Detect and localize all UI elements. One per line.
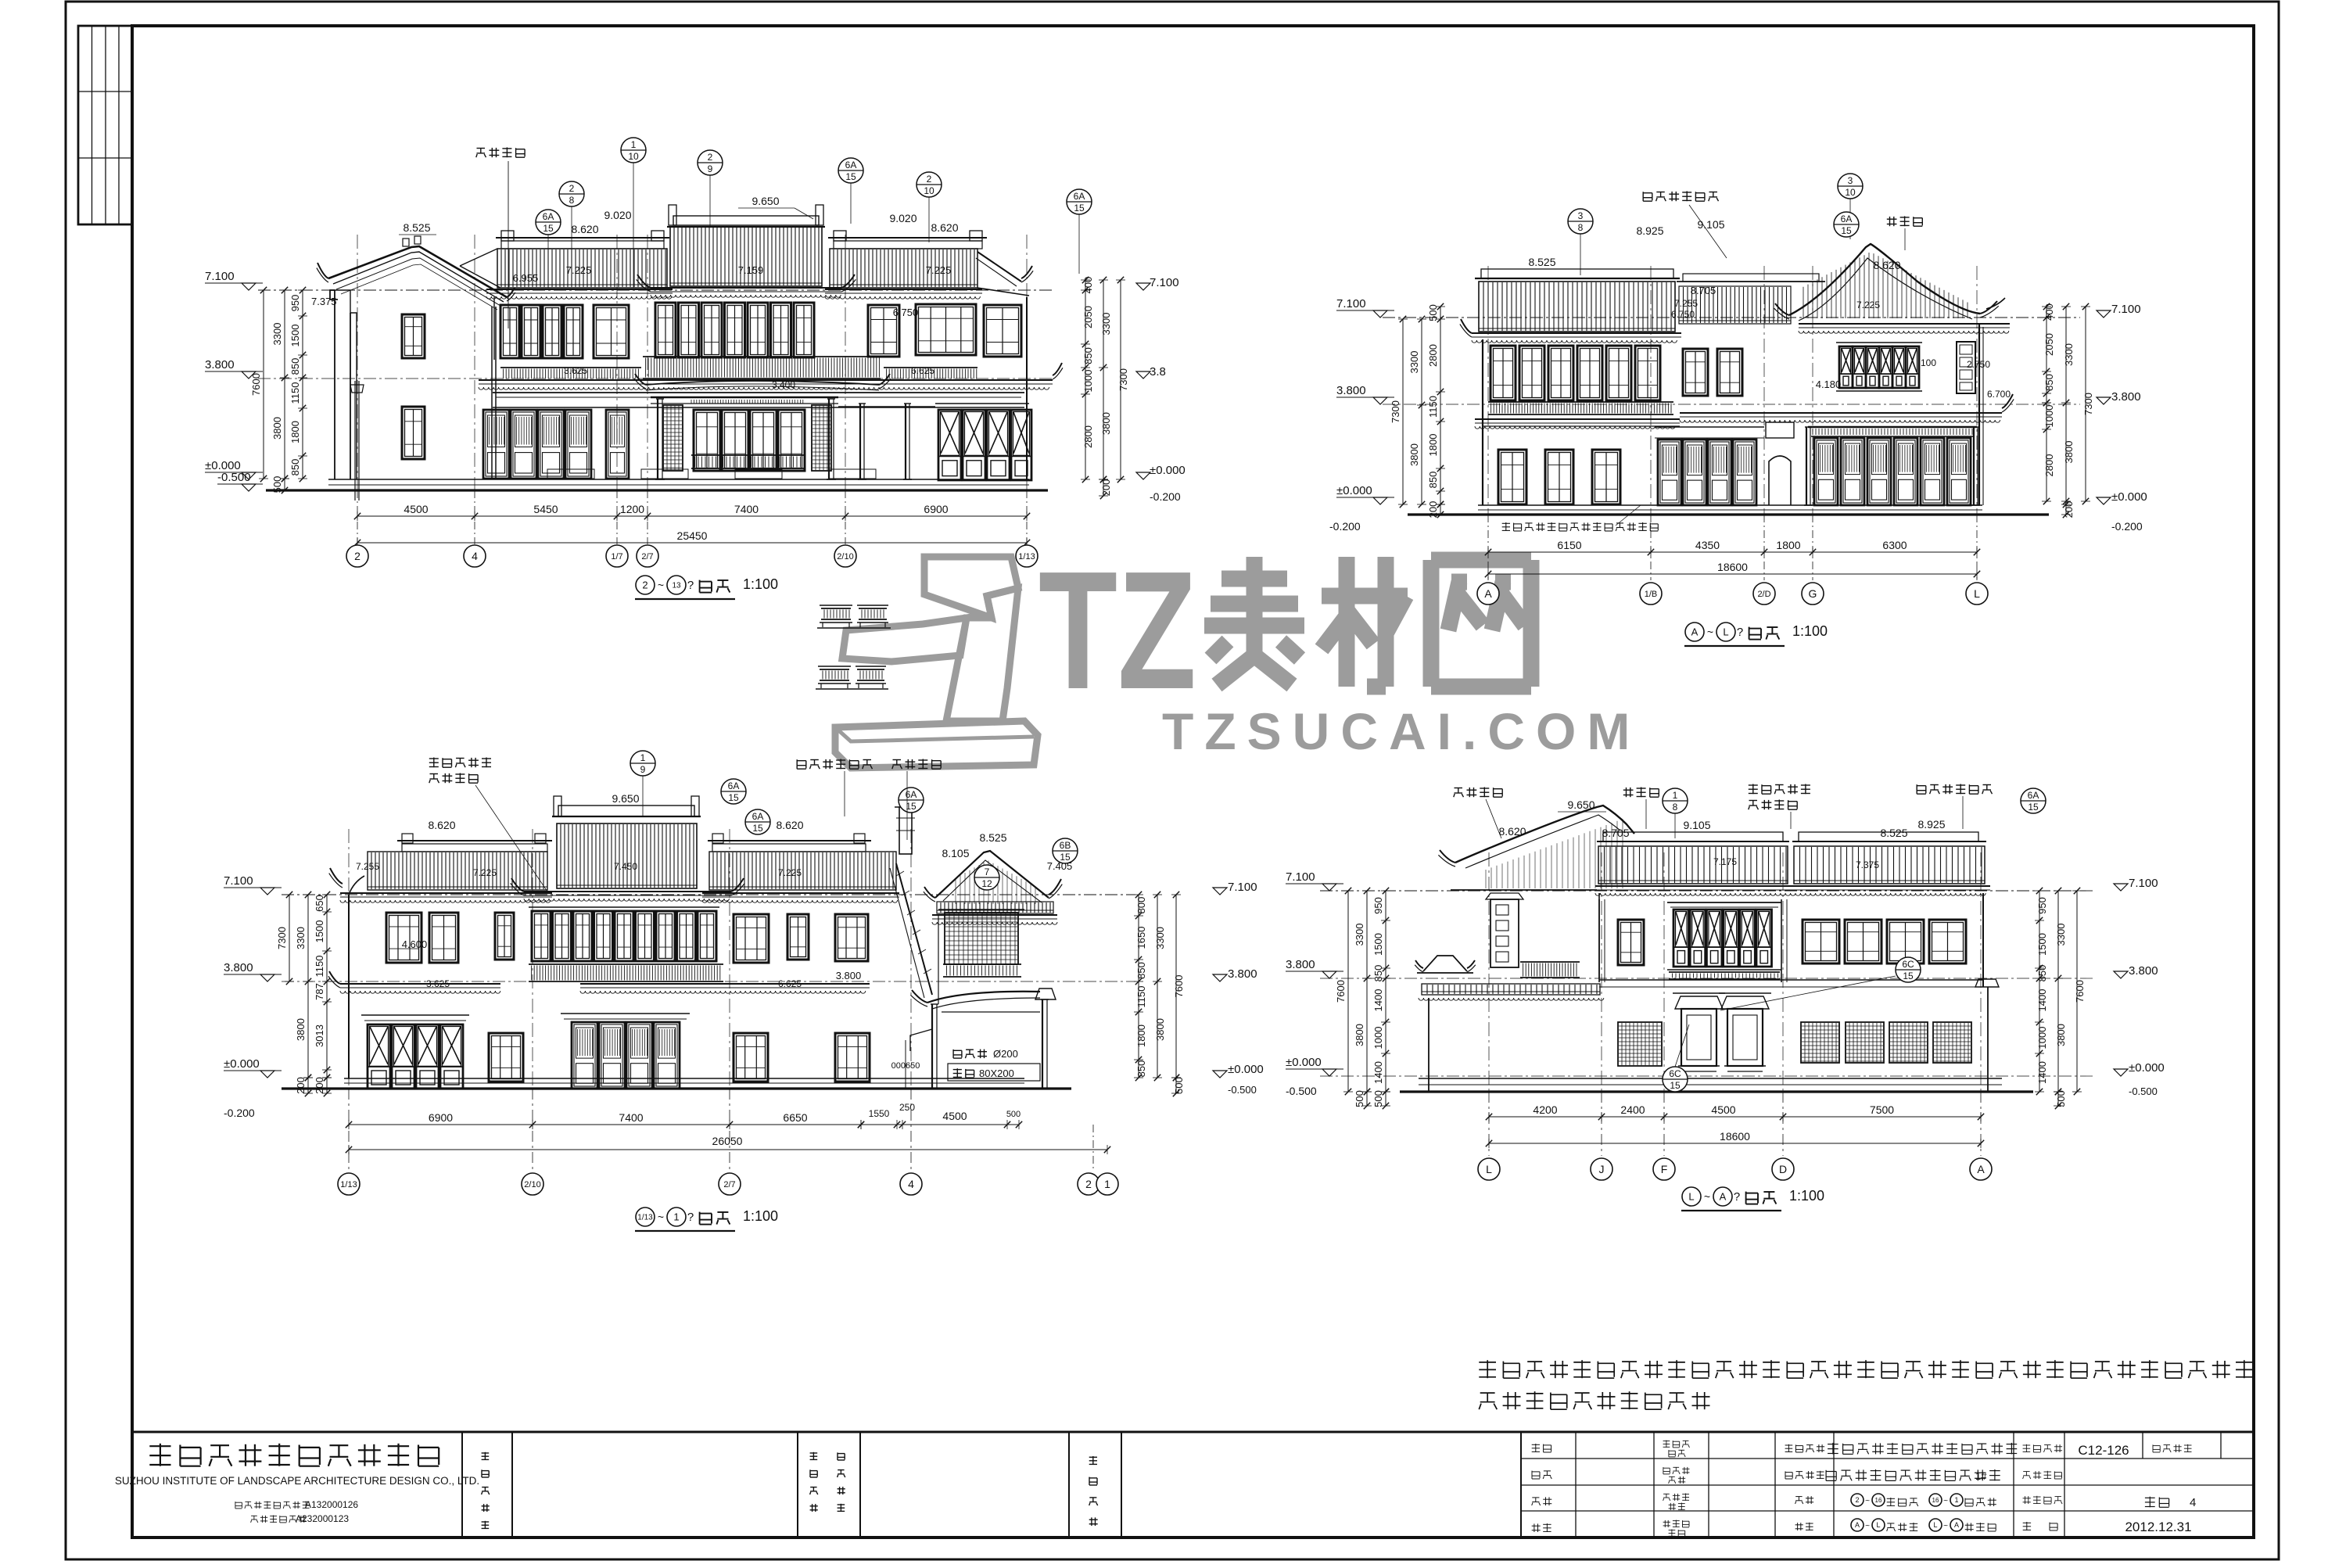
svg-text:3: 3 — [1848, 175, 1853, 186]
svg-text:D: D — [1779, 1163, 1787, 1175]
svg-text:6650: 6650 — [783, 1111, 807, 1124]
svg-text:9.105: 9.105 — [1683, 819, 1710, 831]
svg-text:3.800: 3.800 — [1336, 384, 1366, 397]
svg-text:2/10: 2/10 — [524, 1180, 540, 1189]
svg-text:1400: 1400 — [1372, 1061, 1384, 1084]
svg-text:850: 850 — [1427, 472, 1439, 489]
svg-text:000650: 000650 — [891, 1061, 920, 1071]
svg-text:100: 100 — [1921, 357, 1936, 368]
svg-text:L: L — [1723, 626, 1728, 638]
svg-text:1:100: 1:100 — [1792, 623, 1828, 639]
svg-text:400: 400 — [1082, 277, 1094, 294]
svg-text:1000: 1000 — [2036, 1027, 2048, 1050]
svg-text:950: 950 — [289, 295, 301, 312]
svg-text:3: 3 — [1578, 210, 1584, 221]
svg-text:1/13: 1/13 — [637, 1214, 653, 1222]
svg-text:3.800: 3.800 — [205, 358, 235, 371]
svg-text:8.620: 8.620 — [931, 221, 958, 234]
svg-text:250: 250 — [899, 1102, 915, 1113]
svg-text:7.100: 7.100 — [2129, 877, 2158, 890]
svg-text:6.955: 6.955 — [513, 272, 539, 284]
svg-text:6900: 6900 — [429, 1111, 453, 1124]
svg-text:15: 15 — [845, 171, 856, 182]
svg-text:200: 200 — [2063, 501, 2075, 518]
svg-text:1: 1 — [631, 139, 637, 150]
svg-text:16: 16 — [1875, 1497, 1882, 1504]
svg-text:200: 200 — [1427, 501, 1439, 518]
svg-text:7300: 7300 — [1117, 368, 1129, 391]
svg-text:1150: 1150 — [314, 956, 325, 978]
svg-text:9.650: 9.650 — [1567, 798, 1594, 811]
svg-text:A: A — [1977, 1163, 1985, 1175]
svg-text:3.800: 3.800 — [2111, 390, 2141, 404]
svg-text:4: 4 — [2190, 1496, 2196, 1509]
svg-text:~: ~ — [1707, 626, 1713, 638]
svg-text:2800: 2800 — [2043, 454, 2055, 477]
svg-text:7: 7 — [985, 867, 990, 877]
svg-text:850: 850 — [1135, 962, 1147, 979]
svg-text:G: G — [1809, 587, 1817, 600]
svg-text:2: 2 — [1855, 1496, 1859, 1504]
svg-text:4: 4 — [908, 1178, 914, 1190]
svg-text:8.620: 8.620 — [428, 819, 455, 831]
svg-text:6A: 6A — [543, 211, 554, 222]
svg-text:15: 15 — [2028, 802, 2039, 813]
svg-text:7.100: 7.100 — [224, 874, 253, 888]
svg-text:6150: 6150 — [1557, 539, 1581, 551]
svg-text:8.620: 8.620 — [1498, 825, 1526, 838]
svg-text:-0.200: -0.200 — [1329, 520, 1361, 533]
svg-text:~: ~ — [1704, 1190, 1710, 1203]
svg-text:200: 200 — [295, 1077, 307, 1094]
svg-text:3800: 3800 — [1408, 443, 1420, 466]
svg-text:-0.200: -0.200 — [2111, 520, 2143, 533]
svg-text:2800: 2800 — [1427, 344, 1439, 367]
svg-text:500: 500 — [1006, 1110, 1021, 1119]
svg-text:12: 12 — [981, 878, 992, 889]
svg-text:6A: 6A — [1841, 213, 1853, 224]
svg-text:±0.000: ±0.000 — [224, 1057, 260, 1071]
svg-text:3.800: 3.800 — [1286, 958, 1315, 971]
svg-text:3800: 3800 — [2063, 441, 2075, 464]
svg-text:500: 500 — [1173, 1077, 1185, 1094]
svg-text:3800: 3800 — [271, 417, 283, 440]
svg-text:8.620: 8.620 — [776, 819, 803, 831]
svg-text:7.225: 7.225 — [473, 867, 497, 878]
svg-text:A232000123: A232000123 — [296, 1513, 349, 1524]
svg-text:500: 500 — [1372, 1090, 1384, 1107]
svg-text:8.620: 8.620 — [1873, 259, 1900, 271]
svg-text:8.525: 8.525 — [979, 831, 1006, 844]
svg-text:A132000126: A132000126 — [305, 1499, 358, 1510]
svg-text:1400: 1400 — [2036, 989, 2048, 1012]
svg-text:1800: 1800 — [1776, 539, 1800, 551]
svg-text:6A: 6A — [2028, 790, 2039, 801]
svg-text:6.750: 6.750 — [1671, 309, 1695, 320]
svg-text:1:100: 1:100 — [743, 1208, 778, 1224]
svg-text:7300: 7300 — [1390, 400, 1401, 423]
svg-text:7.100: 7.100 — [2111, 303, 2141, 316]
svg-text:A: A — [1855, 1521, 1860, 1529]
svg-text:±0.000: ±0.000 — [1228, 1063, 1264, 1076]
svg-text:1400: 1400 — [1372, 989, 1384, 1012]
svg-text:6300: 6300 — [1882, 539, 1907, 551]
svg-text:1800: 1800 — [1135, 1024, 1147, 1047]
svg-text:7.225: 7.225 — [778, 867, 802, 878]
svg-text:~: ~ — [1865, 1497, 1870, 1505]
svg-text:1150: 1150 — [1135, 986, 1147, 1008]
svg-text:?: ? — [1734, 1190, 1740, 1204]
svg-text:25450: 25450 — [677, 529, 708, 542]
svg-text:200: 200 — [1100, 479, 1112, 497]
svg-text:J: J — [1599, 1163, 1605, 1175]
svg-text:±0.000: ±0.000 — [2129, 1061, 2165, 1075]
svg-text:A: A — [1484, 587, 1492, 600]
svg-text:9.020: 9.020 — [604, 209, 631, 221]
svg-text:2400: 2400 — [1620, 1103, 1645, 1116]
svg-text:7.255: 7.255 — [356, 861, 379, 872]
svg-text:2: 2 — [569, 183, 575, 194]
svg-text:850: 850 — [1135, 1060, 1147, 1078]
svg-text:5450: 5450 — [533, 503, 558, 515]
svg-text:3300: 3300 — [2055, 924, 2067, 946]
svg-text:8: 8 — [1578, 222, 1584, 233]
svg-text:3300: 3300 — [295, 927, 307, 949]
svg-text:13: 13 — [672, 582, 681, 590]
svg-text:1500: 1500 — [314, 920, 325, 943]
svg-text:7600: 7600 — [1173, 975, 1185, 998]
svg-text:1000: 1000 — [1082, 370, 1094, 393]
svg-text:8.525: 8.525 — [1528, 256, 1555, 268]
svg-text:500: 500 — [1354, 1090, 1365, 1107]
svg-text:3300: 3300 — [271, 323, 283, 346]
svg-text:7.225: 7.225 — [1856, 300, 1880, 310]
svg-text:9.650: 9.650 — [752, 195, 779, 207]
svg-text:3.8: 3.8 — [1150, 365, 1166, 379]
svg-text:3800: 3800 — [2055, 1024, 2067, 1046]
svg-text:~: ~ — [1865, 1522, 1870, 1530]
svg-text:2: 2 — [708, 152, 713, 163]
svg-text:7300: 7300 — [276, 927, 288, 949]
svg-text:4500: 4500 — [1711, 1103, 1735, 1116]
svg-text:3.800: 3.800 — [1228, 967, 1257, 981]
svg-text:±0.000: ±0.000 — [1336, 484, 1372, 497]
svg-text:3800: 3800 — [1354, 1024, 1365, 1046]
svg-text:~: ~ — [658, 579, 664, 591]
svg-text:950: 950 — [2036, 897, 2048, 914]
svg-text:8: 8 — [1673, 802, 1678, 813]
svg-text:26050: 26050 — [712, 1135, 743, 1147]
svg-text:-0.500: -0.500 — [217, 471, 251, 484]
svg-text:SUZHOU INSTITUTE OF LANDSCAPE: SUZHOU INSTITUTE OF LANDSCAPE ARCHITECTU… — [115, 1475, 479, 1487]
svg-text:7600: 7600 — [2074, 980, 2086, 1003]
svg-text:1:100: 1:100 — [1789, 1188, 1824, 1204]
svg-text:7.375: 7.375 — [311, 296, 337, 307]
svg-text:4.600: 4.600 — [402, 938, 428, 950]
svg-text:2: 2 — [354, 550, 361, 562]
svg-text:1500: 1500 — [1372, 933, 1384, 956]
svg-text:4: 4 — [472, 550, 478, 562]
svg-text:±0.000: ±0.000 — [2111, 490, 2147, 504]
svg-text:8.705: 8.705 — [1691, 285, 1716, 296]
svg-text:9: 9 — [708, 163, 713, 174]
svg-text:1500: 1500 — [289, 325, 301, 347]
svg-text:15: 15 — [1670, 1080, 1681, 1091]
svg-text:15: 15 — [728, 792, 739, 803]
svg-text:80X200: 80X200 — [979, 1067, 1014, 1079]
svg-text:-0.500: -0.500 — [2129, 1085, 2158, 1097]
svg-text:1/13: 1/13 — [1018, 552, 1035, 562]
svg-text:7.175: 7.175 — [1713, 856, 1737, 867]
svg-text:500: 500 — [1427, 304, 1439, 321]
svg-text:6C: 6C — [1902, 959, 1914, 970]
svg-text:±0.000: ±0.000 — [1286, 1056, 1322, 1069]
svg-text:1500: 1500 — [2036, 933, 2048, 956]
svg-text:6A: 6A — [1074, 191, 1085, 202]
svg-text:950: 950 — [1372, 897, 1384, 914]
svg-text:Ø200: Ø200 — [993, 1048, 1018, 1060]
svg-text:1800: 1800 — [289, 421, 301, 443]
svg-text:TZ: TZ — [1038, 536, 1196, 724]
svg-text:7400: 7400 — [734, 503, 759, 515]
svg-text:9: 9 — [640, 764, 646, 775]
svg-text:L: L — [1876, 1521, 1880, 1529]
svg-text:3300: 3300 — [2063, 343, 2075, 366]
svg-text:C12-126: C12-126 — [2078, 1443, 2129, 1458]
svg-text:TZSUCAI.COM: TZSUCAI.COM — [1162, 702, 1641, 760]
svg-text:3.800: 3.800 — [224, 961, 253, 974]
svg-text:6.750: 6.750 — [893, 307, 919, 318]
svg-text:~: ~ — [1943, 1522, 1948, 1530]
svg-text:7.100: 7.100 — [1228, 881, 1257, 894]
svg-text:L: L — [1486, 1163, 1492, 1175]
svg-text:4.180: 4.180 — [1816, 379, 1842, 390]
svg-text:1550: 1550 — [869, 1108, 890, 1119]
svg-text:-0.500: -0.500 — [1228, 1084, 1257, 1096]
svg-text:500: 500 — [2055, 1090, 2067, 1107]
svg-text:8.105: 8.105 — [942, 847, 969, 859]
svg-text:F: F — [1661, 1163, 1668, 1175]
svg-text:18600: 18600 — [1717, 561, 1748, 573]
svg-text:A: A — [1720, 1191, 1727, 1203]
svg-text:2: 2 — [642, 579, 647, 591]
svg-text:6A: 6A — [752, 811, 764, 822]
svg-text:9.020: 9.020 — [889, 212, 917, 224]
svg-text:7.225: 7.225 — [926, 264, 952, 276]
svg-text:3.625: 3.625 — [564, 365, 587, 376]
svg-text:15: 15 — [1841, 225, 1852, 236]
svg-text:7.100: 7.100 — [1336, 297, 1366, 310]
svg-text:2012.12.31: 2012.12.31 — [2125, 1520, 2191, 1534]
svg-text:7500: 7500 — [1870, 1103, 1894, 1116]
svg-text:8.925: 8.925 — [1917, 818, 1945, 831]
svg-text:6900: 6900 — [924, 503, 948, 515]
svg-text:1:100: 1:100 — [743, 576, 778, 592]
svg-text:L: L — [1688, 1191, 1694, 1203]
svg-text:650: 650 — [314, 895, 325, 912]
svg-text:1000: 1000 — [2043, 405, 2055, 428]
svg-text:200: 200 — [314, 1077, 325, 1094]
svg-text:9.105: 9.105 — [1697, 218, 1724, 231]
svg-text:500: 500 — [271, 476, 283, 493]
svg-text:1/B: 1/B — [1645, 590, 1658, 599]
svg-text:?: ? — [687, 1211, 694, 1224]
svg-text:850: 850 — [289, 459, 301, 476]
svg-text:8.620: 8.620 — [571, 223, 598, 235]
svg-text:4350: 4350 — [1695, 539, 1720, 551]
svg-text:A: A — [1691, 626, 1699, 638]
svg-text:4200: 4200 — [1533, 1103, 1557, 1116]
svg-text:3300: 3300 — [1100, 313, 1112, 335]
svg-text:15: 15 — [1060, 852, 1071, 863]
svg-text:7.100: 7.100 — [1286, 870, 1315, 884]
svg-text:850: 850 — [2036, 965, 2048, 982]
svg-text:-0.200: -0.200 — [224, 1107, 255, 1119]
svg-text:8: 8 — [569, 195, 575, 206]
svg-text:16: 16 — [1932, 1497, 1939, 1504]
svg-text:-0.500: -0.500 — [1286, 1085, 1317, 1097]
svg-text:7600: 7600 — [250, 373, 262, 396]
svg-text:3300: 3300 — [1354, 924, 1365, 946]
svg-text:3300: 3300 — [1408, 351, 1420, 374]
svg-text:8.525: 8.525 — [403, 221, 430, 234]
svg-text:L: L — [1974, 587, 1980, 600]
svg-text:6A: 6A — [728, 780, 740, 791]
svg-text:2050: 2050 — [1082, 306, 1094, 328]
svg-text:15: 15 — [543, 223, 554, 234]
svg-text:1150: 1150 — [1427, 396, 1439, 418]
svg-text:2/10: 2/10 — [837, 552, 853, 562]
svg-text:850: 850 — [2043, 374, 2055, 391]
svg-text:1400: 1400 — [2036, 1061, 2048, 1084]
svg-text:?: ? — [687, 579, 694, 592]
svg-text:6C: 6C — [1669, 1068, 1681, 1079]
svg-text:1: 1 — [1954, 1496, 1958, 1504]
svg-text:1650: 1650 — [1135, 927, 1147, 949]
svg-text:1/7: 1/7 — [611, 552, 622, 562]
svg-text:2: 2 — [1085, 1178, 1092, 1190]
svg-text:850: 850 — [1082, 347, 1094, 364]
svg-text:~: ~ — [658, 1211, 664, 1223]
svg-text:3.800: 3.800 — [836, 970, 862, 981]
svg-text:8.925: 8.925 — [1636, 224, 1663, 237]
svg-text:1: 1 — [1673, 790, 1678, 801]
svg-text:850: 850 — [289, 358, 301, 375]
svg-text:400: 400 — [2043, 303, 2055, 321]
svg-text:2800: 2800 — [1082, 425, 1094, 448]
svg-text:1200: 1200 — [620, 503, 644, 515]
svg-text:?: ? — [1737, 626, 1743, 639]
svg-text:2/7: 2/7 — [641, 552, 653, 562]
svg-text:787: 787 — [314, 983, 325, 1000]
svg-text:2050: 2050 — [2043, 333, 2055, 356]
svg-text:3800: 3800 — [1154, 1018, 1166, 1041]
svg-text:10: 10 — [628, 151, 639, 162]
svg-text:6B: 6B — [1060, 840, 1071, 851]
svg-text:15: 15 — [752, 823, 763, 834]
svg-text:850: 850 — [1372, 965, 1384, 982]
svg-text:7.375: 7.375 — [1856, 859, 1879, 870]
svg-text:2/7: 2/7 — [723, 1180, 735, 1189]
svg-text:~: ~ — [1943, 1497, 1948, 1505]
svg-text:7600: 7600 — [1335, 980, 1347, 1003]
svg-text:2/D: 2/D — [1757, 590, 1770, 599]
svg-text:7.225: 7.225 — [566, 264, 592, 276]
svg-text:3013: 3013 — [314, 1024, 325, 1047]
svg-text:8.705: 8.705 — [1602, 827, 1629, 839]
svg-text:3800: 3800 — [1100, 412, 1112, 435]
svg-text:9.650: 9.650 — [612, 792, 639, 805]
svg-text:±0.000: ±0.000 — [1150, 464, 1186, 477]
svg-text:-0.200: -0.200 — [1150, 490, 1181, 503]
svg-text:15: 15 — [1903, 971, 1914, 981]
svg-text:2: 2 — [927, 174, 932, 185]
svg-text:1#: 1# — [1975, 1470, 1987, 1482]
svg-text:4500: 4500 — [942, 1110, 967, 1122]
svg-text:2.750: 2.750 — [1967, 359, 1990, 370]
svg-text:1800: 1800 — [1427, 434, 1439, 457]
svg-text:1: 1 — [1104, 1178, 1110, 1190]
svg-text:7300: 7300 — [2082, 393, 2094, 415]
svg-text:6A: 6A — [845, 160, 857, 170]
svg-text:A: A — [1954, 1521, 1959, 1529]
svg-text:4500: 4500 — [404, 503, 428, 515]
svg-text:8.525: 8.525 — [1880, 827, 1907, 839]
svg-text:1150: 1150 — [289, 382, 301, 404]
svg-text:3300: 3300 — [1154, 927, 1166, 949]
svg-text:7.100: 7.100 — [1150, 276, 1179, 289]
svg-text:3800: 3800 — [295, 1018, 307, 1041]
svg-text:7400: 7400 — [619, 1111, 643, 1124]
svg-text:10: 10 — [1845, 187, 1856, 198]
svg-text:1: 1 — [640, 752, 646, 763]
svg-text:7.159: 7.159 — [738, 264, 764, 276]
svg-text:L: L — [1933, 1521, 1937, 1529]
svg-text:3.400: 3.400 — [772, 379, 795, 390]
svg-text:15: 15 — [1074, 203, 1085, 213]
svg-text:10: 10 — [924, 185, 934, 196]
svg-text:1/13: 1/13 — [340, 1180, 357, 1189]
svg-text:7.255: 7.255 — [1674, 298, 1698, 309]
svg-text:800: 800 — [1135, 897, 1147, 914]
svg-text:6.625: 6.625 — [911, 365, 934, 376]
svg-text:1000: 1000 — [1372, 1027, 1384, 1050]
svg-text:3.800: 3.800 — [2129, 964, 2158, 978]
svg-text:7.100: 7.100 — [205, 270, 235, 283]
svg-text:7.450: 7.450 — [614, 861, 637, 872]
svg-text:6.625: 6.625 — [778, 978, 802, 989]
svg-text:3.625: 3.625 — [426, 978, 450, 989]
svg-text:1: 1 — [673, 1211, 679, 1223]
svg-text:6.700: 6.700 — [1987, 389, 2011, 400]
svg-text:18600: 18600 — [1720, 1130, 1750, 1143]
